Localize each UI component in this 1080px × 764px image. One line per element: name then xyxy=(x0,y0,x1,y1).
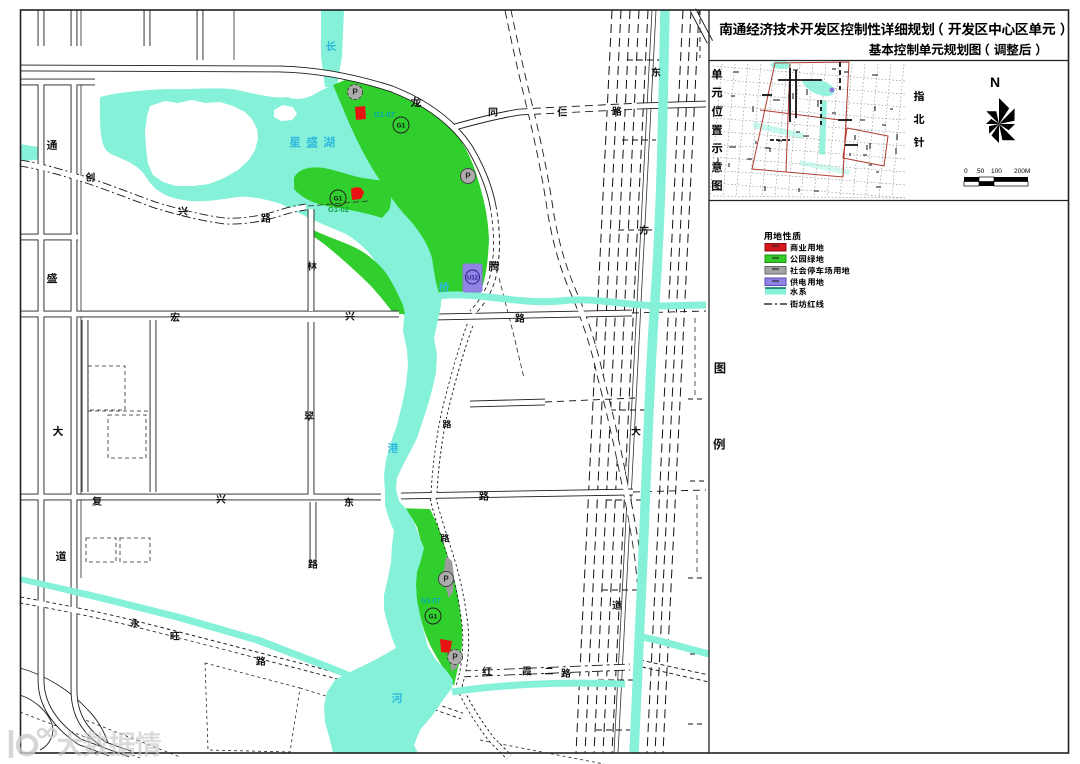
svg-text:200M: 200M xyxy=(1014,168,1030,175)
svg-text:G1-02: G1-02 xyxy=(328,205,349,214)
svg-text:G1-07: G1-07 xyxy=(421,598,441,605)
svg-text:0: 0 xyxy=(964,168,968,175)
svg-text:P: P xyxy=(352,88,358,97)
svg-text:G1: G1 xyxy=(397,122,406,129)
svg-text:G1: G1 xyxy=(429,613,438,620)
svg-text:G1-07: G1-07 xyxy=(374,110,395,119)
svg-text:P: P xyxy=(465,172,471,181)
svg-text:100: 100 xyxy=(991,168,1002,175)
svg-text:U12: U12 xyxy=(467,276,479,282)
svg-text:G1: G1 xyxy=(334,195,343,202)
svg-text:50: 50 xyxy=(977,168,985,175)
svg-text:P: P xyxy=(443,575,449,584)
svg-text:P: P xyxy=(452,653,458,662)
svg-text:N: N xyxy=(990,74,1000,90)
